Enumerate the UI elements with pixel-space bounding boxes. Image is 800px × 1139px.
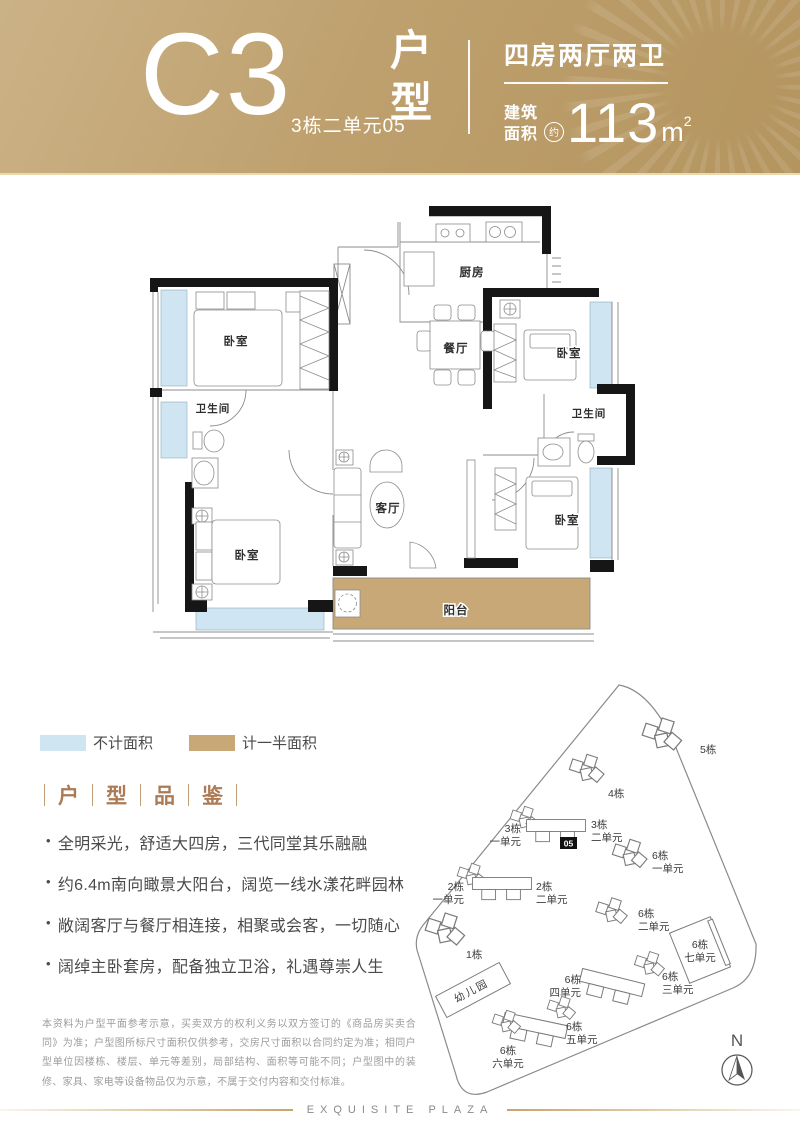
room-label-bedroom-bl: 卧室 [235,548,260,562]
bldg-label-6u4: 6栋 [565,973,582,986]
title-bar [188,784,189,806]
section-title: 户 型 品 鉴 [44,780,250,810]
approx-circle-icon: 约 [544,122,564,142]
bldg-label-6u5: 6栋 [566,1020,583,1033]
bullet-dot-icon: • [46,871,51,895]
bldg-label-5: 5栋 [700,743,717,756]
area-caption: 建筑 面积 [504,104,538,146]
compass-icon: N [722,1031,752,1085]
bldg-label-4: 4栋 [608,787,625,800]
legend-swatch-tan [189,735,235,751]
bldg-label-2u2: 2栋 [536,880,553,893]
area-unit-sup: 2 [684,114,692,128]
bldg-label-3u2: 3栋 [591,818,608,831]
bullet-dot-icon: • [46,830,51,854]
title-bar [44,784,45,806]
bullet-dot-icon: • [46,912,51,936]
area-unit: m [661,119,684,146]
room-label-bedroom-tr: 卧室 [557,346,582,360]
bldg-label-1: 1栋 [466,948,483,961]
disclaimer-text: 本资料为户型平面参考示意，买卖双方的权利义务以双方签订的《商品房买卖合同》为准；… [42,1015,416,1092]
title-bar [92,784,93,806]
bldg-label-6u4b: 四单元 [550,987,582,999]
bullet-dot-icon: • [46,953,51,977]
header-divider [468,40,470,134]
bldg-label-6u3: 6栋 [662,970,679,983]
type-char-2: 型 [390,82,432,124]
list-item: • 阔绰主卧套房，配备独立卫浴，礼遇尊崇人生 [46,953,406,977]
bldg-label-6u3b: 三单元 [662,984,694,996]
title-bar [140,784,141,806]
bldg-label-6u6: 6栋 [500,1044,517,1057]
legend: 不计面积 计一半面积 [40,732,353,753]
selling-point-1: 全明采光，舒适大四房，三代同堂其乐融融 [58,830,368,854]
title-bar [236,784,237,806]
bldg-label-6u5b: 五单元 [566,1034,598,1046]
bldg-label-3u1: 3栋 [505,822,522,835]
legend-item-half-area: 计一半面积 [189,732,317,753]
room-label-balcony: 阳台 [444,603,469,617]
site-building-labels: 5栋 4栋 3栋 一单元 3栋 二单元 6栋 一单元 2栋 一单元 2栋 二单元… [433,743,717,1070]
selling-point-2: 约6.4m南向瞰景大阳台，阔览一线水漾花畔园林 [58,871,404,895]
room-label-kitchen: 厨房 [460,265,485,279]
header-right-block: 四房两厅两卫 建筑 面积 约 113 m 2 [504,36,724,146]
area-value: 113 [567,100,659,146]
bldg-label-6u1b: 一单元 [652,863,684,875]
title-char-3: 品 [154,780,175,810]
selling-point-4: 阔绰主卧套房，配备独立卫浴，礼遇尊崇人生 [58,953,384,977]
list-item: • 约6.4m南向瞰景大阳台，阔览一线水漾花畔园林 [46,871,406,895]
legend-swatch-blue [40,735,86,751]
site-buildings [425,718,731,1049]
header-banner: C3 3栋二单元05 户 型 四房两厅两卫 建筑 面积 约 113 m 2 [0,0,800,175]
unit-location: 3栋二单元05 [291,111,406,138]
room-label-bath-left: 卫生间 [196,402,231,415]
selling-point-3: 敞阔客厅与餐厅相连接，相聚或会客，一切随心 [58,912,400,936]
bldg-label-2u2b: 二单元 [536,894,568,906]
list-item: • 全明采光，舒适大四房，三代同堂其乐融融 [46,830,406,854]
area-row: 建筑 面积 约 113 m 2 [504,100,724,146]
floorplan-poster: C3 3栋二单元05 户 型 四房两厅两卫 建筑 面积 约 113 m 2 [0,0,800,1139]
area-caption-line1: 建筑 [504,104,538,125]
brand-text: EXQUISITE PLAZA [293,1104,508,1116]
header-underline [504,82,668,84]
title-char-2: 型 [106,780,127,810]
site-plan-map: 5栋 4栋 3栋 一单元 3栋 二单元 6栋 一单元 2栋 一单元 2栋 二单元… [398,670,794,1106]
compass-n-label: N [731,1031,743,1050]
footer: EXQUISITE PLAZA [0,1104,800,1116]
footer-line-left [0,1109,293,1111]
footer-line-right [507,1109,800,1111]
unit-code: C3 [140,16,292,132]
bldg-label-6u1: 6栋 [652,849,669,862]
bldg-label-3u2b: 二单元 [591,832,623,844]
title-char-4: 鉴 [202,780,223,810]
room-label-dining: 餐厅 [443,341,469,355]
bldg-label-6u7b: 七单元 [684,952,716,964]
bldg-label-3u1b: 一单元 [490,836,522,848]
legend-label-excluded: 不计面积 [93,732,153,753]
bldg-label-2u1b: 一单元 [433,894,465,906]
legend-label-half: 计一半面积 [242,732,317,753]
balcony-area-highlight [333,578,590,629]
bldg-label-6u2b: 二单元 [638,921,670,933]
unit-05-badge-text: 05 [564,839,574,849]
room-label-living: 客厅 [375,501,401,515]
type-vertical-label: 户 型 [390,30,432,124]
bldg-label-6u7: 6栋 [692,938,709,951]
unit-05-badge: 05 [560,837,577,849]
selling-points-list: • 全明采光，舒适大四房，三代同堂其乐融融 • 约6.4m南向瞰景大阳台，阔览一… [46,830,406,994]
floor-plan-drawing: 厨房 餐厅 卧室 卧室 卫生间 卫生间 客厅 卧室 卧室 阳台 [140,188,670,668]
room-label-bedroom-br: 卧室 [555,513,580,527]
room-label-bath-right: 卫生间 [572,407,607,420]
room-label-bedroom-tl: 卧室 [224,334,249,348]
bldg-label-6u6b: 六单元 [492,1058,524,1070]
area-caption-line2: 面积 [504,125,538,146]
bldg-label-6u2: 6栋 [638,907,655,920]
title-char-1: 户 [58,780,79,810]
layout-name: 四房两厅两卫 [504,36,724,72]
bldg-label-2u1: 2栋 [448,880,465,893]
list-item: • 敞阔客厅与餐厅相连接，相聚或会客，一切随心 [46,912,406,936]
legend-item-excluded-area: 不计面积 [40,732,153,753]
type-char-1: 户 [390,30,432,72]
